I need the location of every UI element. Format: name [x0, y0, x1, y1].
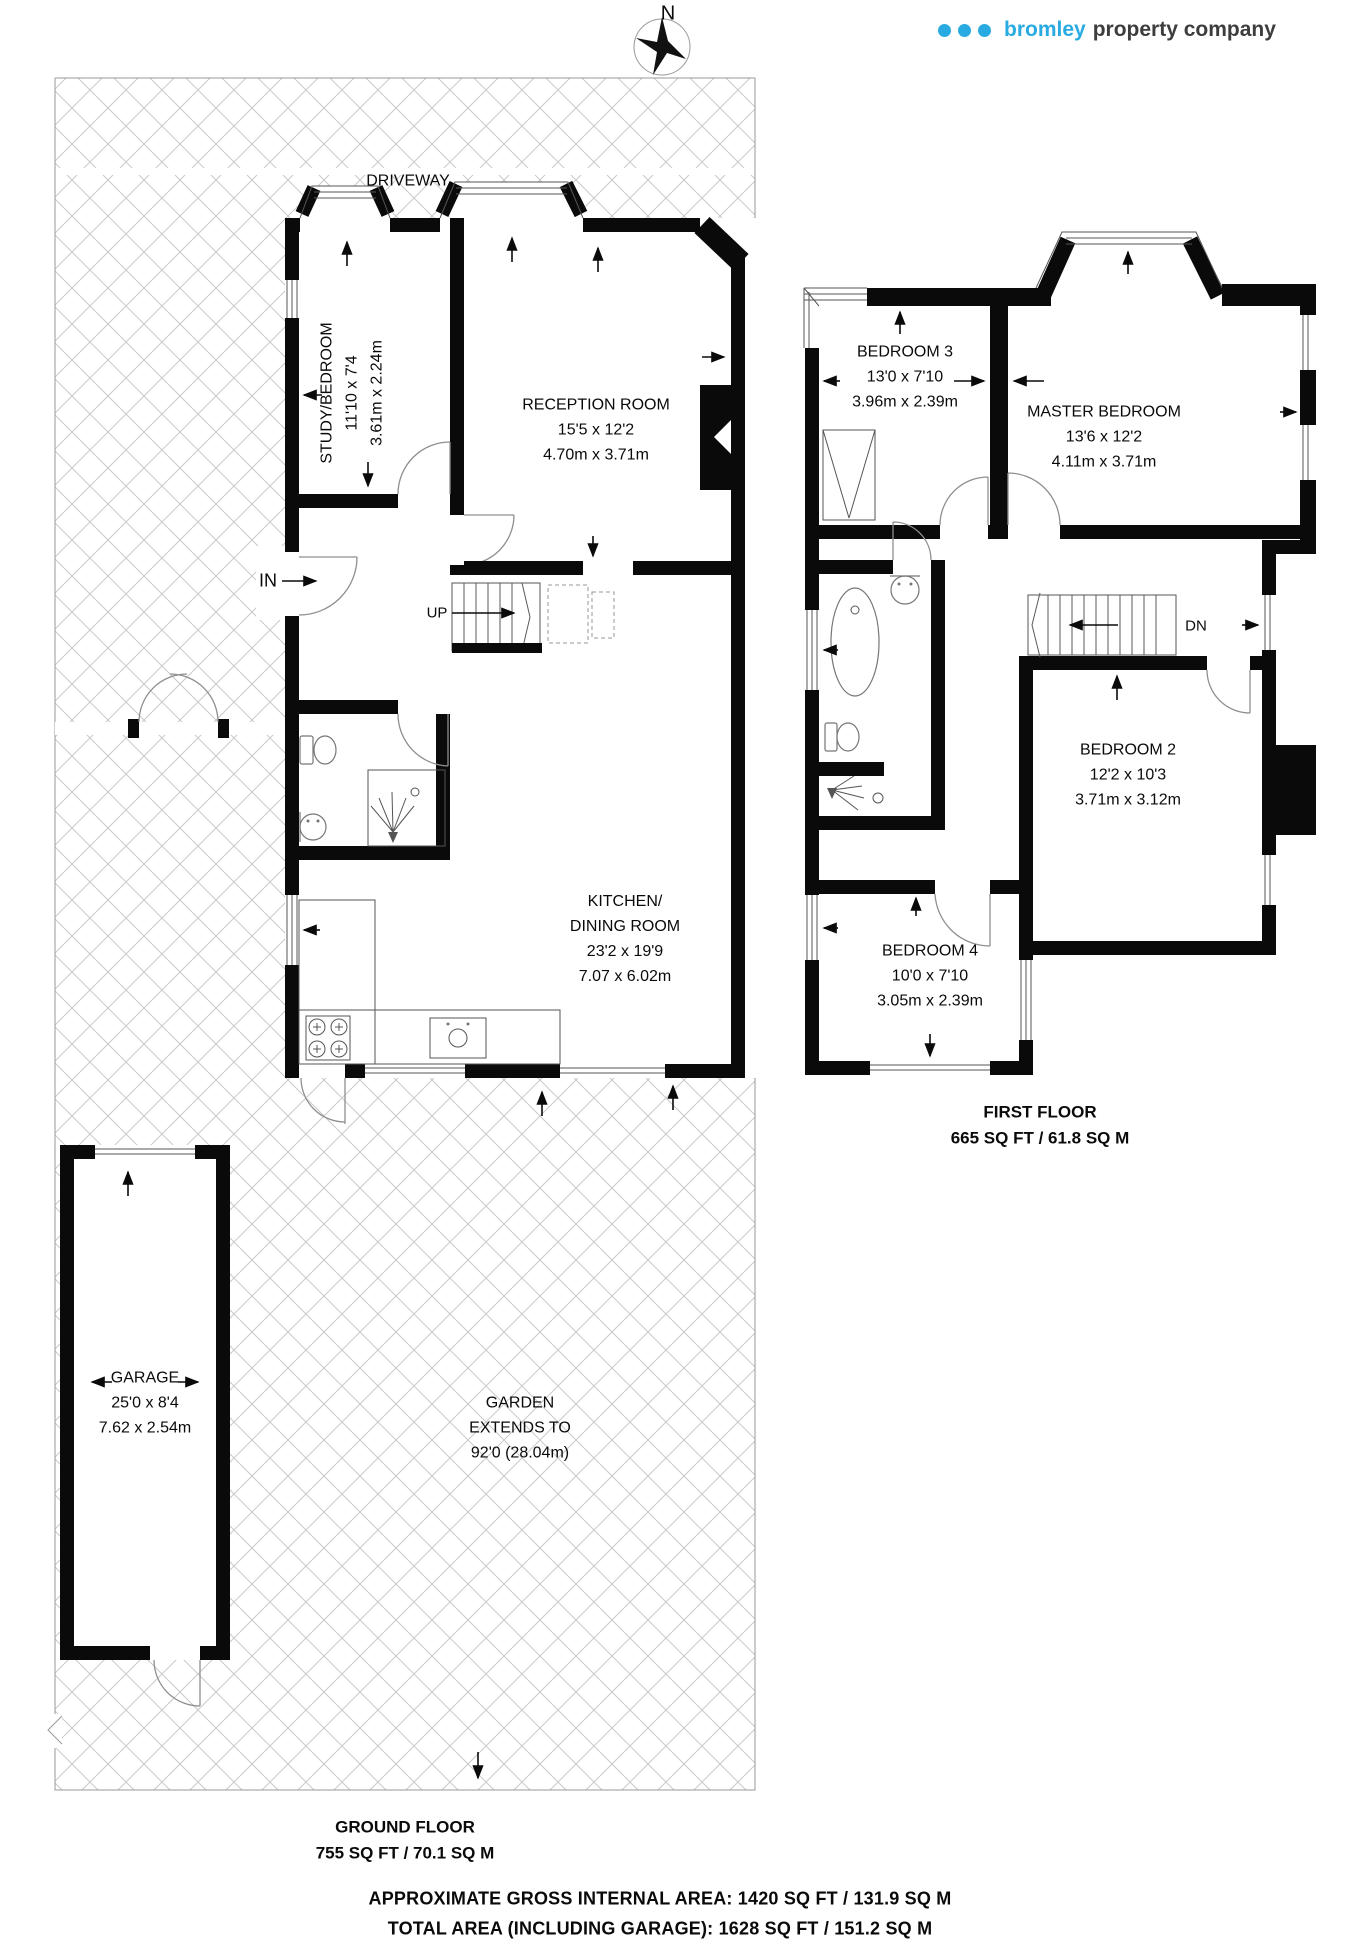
floorplan-page: N bromley property company DRIVEWAY GARD…: [0, 0, 1350, 1954]
room-label-garage: GARAGE25'0 x 8'47.62 x 2.54m: [99, 1366, 192, 1441]
logo-brand-suffix: property company: [1093, 18, 1276, 42]
fireplace-icon: [700, 385, 731, 490]
bedroom2-door: [1207, 670, 1250, 713]
bay-window-master: [1036, 232, 1222, 298]
bedroom2-chimney: [1262, 745, 1316, 835]
compass-north-label: N: [661, 2, 675, 27]
shower-first-floor-icon: [827, 776, 883, 810]
first-floor-title: FIRST FLOOR: [983, 1100, 1096, 1125]
logo-dot-icon: [978, 24, 991, 37]
entrance-in-label: IN: [259, 569, 277, 594]
room-label-bedroom-2: BEDROOM 212'2 x 10'33.71m x 3.12m: [1075, 738, 1181, 813]
toilet-first-floor-icon: [825, 723, 859, 751]
driveway-label: DRIVEWAY: [366, 169, 450, 194]
total-internal-area: APPROXIMATE GROSS INTERNAL AREA: 1420 SQ…: [369, 1887, 952, 1912]
agency-logo: bromley property company: [938, 18, 1276, 42]
logo-dot-icon: [958, 24, 971, 37]
room-label-reception-room: RECEPTION ROOM15'5 x 12'24.70m x 3.71m: [522, 393, 670, 468]
boundary-break-icon: [48, 1714, 62, 1748]
room-label-kitchen-dining-room: KITCHEN/DINING ROOM23'2 x 19'97.07 x 6.0…: [570, 889, 680, 989]
ground-floor-title: GROUND FLOOR: [335, 1815, 475, 1840]
logo-brand-name: bromley: [1004, 18, 1086, 42]
logo-dot-icon: [938, 24, 951, 37]
room-label-master-bedroom: MASTER BEDROOM13'6 x 12'24.11m x 3.71m: [1027, 400, 1181, 475]
room-label-study-bedroom: STUDY/BEDROOM11'10 x 7'43.61m x 2.24m: [315, 322, 390, 463]
garden-label: GARDEN EXTENDS TO 92'0 (28.04m): [469, 1391, 571, 1466]
bath-icon: [831, 588, 879, 696]
bedroom3-closet: [823, 430, 875, 520]
bathroom-sink-icon: [890, 576, 920, 604]
first-floor-area: 665 SQ FT / 61.8 SQ M: [951, 1126, 1130, 1151]
room-label-bedroom-4: BEDROOM 410'0 x 7'103.05m x 2.39m: [877, 939, 983, 1014]
toilet-icon: [300, 736, 336, 764]
stairs-up-label: UP: [427, 601, 448, 626]
total-area-including-garage: TOTAL AREA (INCLUDING GARAGE): 1628 SQ F…: [388, 1917, 933, 1942]
master-bedroom-door: [1008, 473, 1060, 525]
stairs-down: [1028, 593, 1176, 657]
bedroom3-door: [940, 477, 988, 525]
ground-floor-area: 755 SQ FT / 70.1 SQ M: [316, 1841, 495, 1866]
stairs-down-label: DN: [1185, 614, 1207, 639]
room-label-bedroom-3: BEDROOM 313'0 x 7'103.96m x 2.39m: [852, 340, 958, 415]
